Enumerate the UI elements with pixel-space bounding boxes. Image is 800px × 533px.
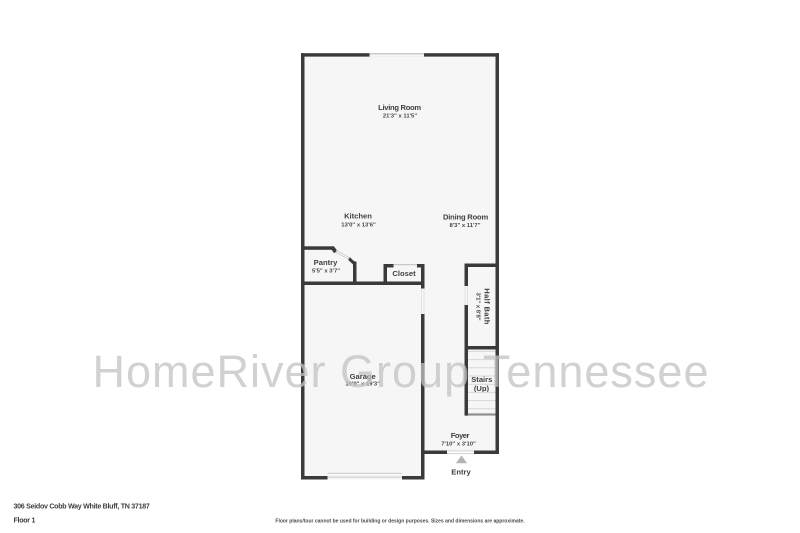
svg-text:Pantry: Pantry <box>314 258 338 267</box>
svg-text:Foyer: Foyer <box>451 431 470 440</box>
svg-text:7'10" x 3'10": 7'10" x 3'10" <box>441 441 476 447</box>
svg-text:21'3" x 11'5": 21'3" x 11'5" <box>383 114 417 120</box>
svg-text:Floor 1: Floor 1 <box>14 517 36 525</box>
svg-text:Closet: Closet <box>392 269 416 278</box>
svg-text:5'5" x 3'7": 5'5" x 3'7" <box>312 269 340 275</box>
svg-text:Half Bath: Half Bath <box>483 288 492 324</box>
svg-text:306 Seidov Cobb Way White Bluf: 306 Seidov Cobb Way White Bluff, TN 3718… <box>14 502 150 510</box>
svg-text:Kitchen: Kitchen <box>344 212 372 221</box>
svg-text:3'1" x 8'8": 3'1" x 8'8" <box>475 292 481 320</box>
svg-text:Dining Room: Dining Room <box>443 213 488 222</box>
svg-text:HomeRiver Group Tennessee: HomeRiver Group Tennessee <box>93 346 710 397</box>
svg-text:8'3" x 11'7": 8'3" x 11'7" <box>450 223 481 229</box>
svg-text:Floor plans/tour cannot be use: Floor plans/tour cannot be used for buil… <box>275 518 525 524</box>
svg-text:Living Room: Living Room <box>378 103 421 112</box>
svg-text:Entry: Entry <box>451 467 471 476</box>
svg-text:13'0" x 13'6": 13'0" x 13'6" <box>341 223 376 229</box>
